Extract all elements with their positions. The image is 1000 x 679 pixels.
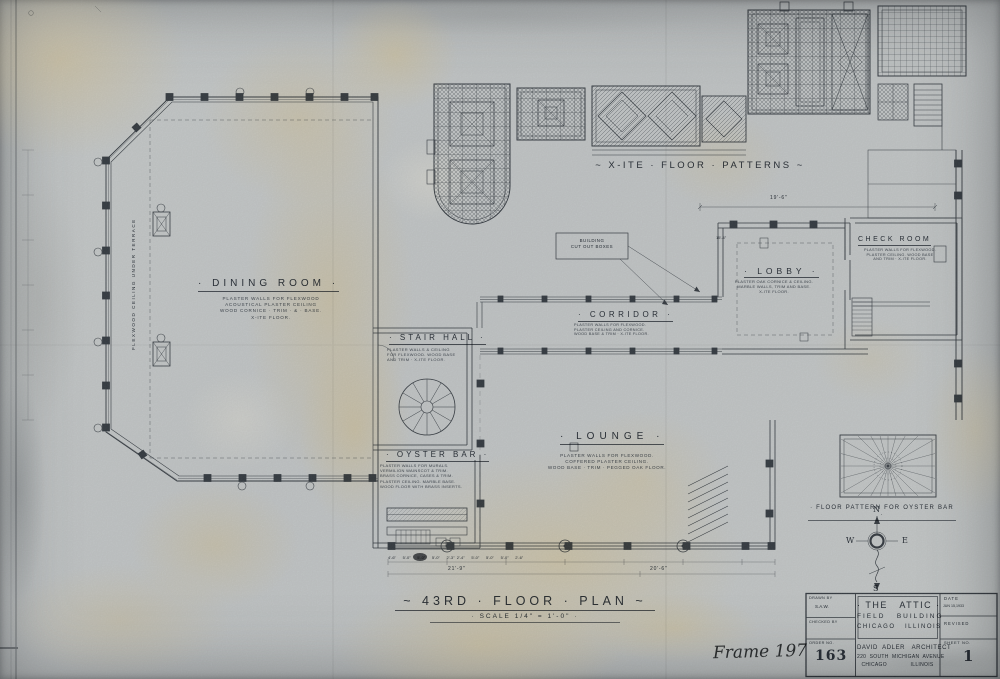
pattern-room-c (592, 86, 700, 146)
stair-hall-walls (373, 328, 472, 450)
pattern-room-b (517, 88, 585, 140)
oyster-pattern-detail (818, 396, 958, 536)
plan-linework (0, 0, 1000, 679)
check-room-walls (845, 150, 962, 420)
pattern-room-e (748, 2, 870, 114)
pattern-room-rounded (427, 84, 510, 224)
pattern-room-d (702, 96, 746, 142)
lobby-walls (698, 203, 937, 354)
sheet-margins (0, 0, 101, 679)
compass-rose (856, 516, 898, 590)
title-block-lines (806, 594, 997, 677)
pattern-room-grid (878, 6, 966, 76)
leader-lines (556, 233, 700, 305)
blueprint-sheet: ~ X-ITE · FLOOR · PATTERNS ~ · DINING RO… (0, 0, 1000, 679)
lounge-walls (388, 355, 775, 552)
dining-room-walls (94, 88, 378, 490)
south-dimensions (388, 559, 775, 577)
